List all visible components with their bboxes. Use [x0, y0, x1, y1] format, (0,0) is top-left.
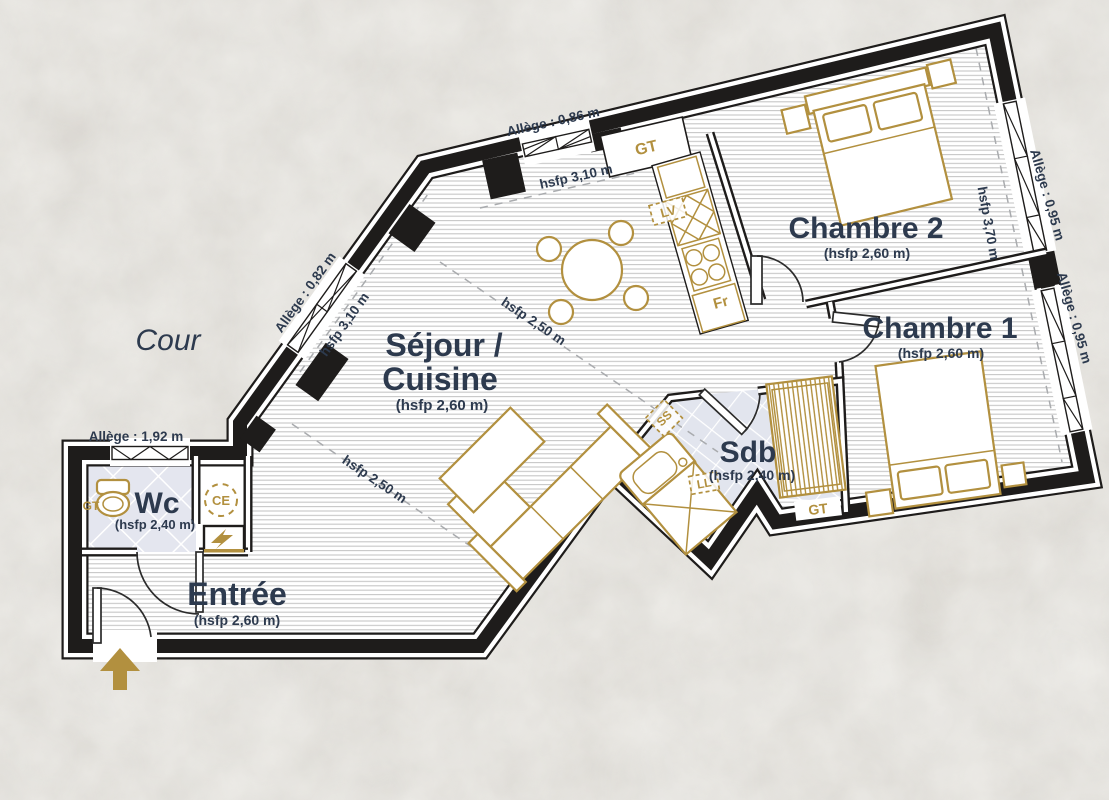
floor-plan: GT Fr LV [0, 0, 1109, 800]
label-sdb: Sdb [720, 436, 777, 469]
label-sdb-hsfp: (hsfp 2,40 m) [709, 467, 795, 483]
label-wc: Wc [135, 487, 180, 520]
electrical-panel [204, 526, 244, 553]
allege-wc: Allège : 1,92 m [89, 429, 184, 444]
label-sejour-line1: Séjour / [385, 327, 502, 363]
label-entree-hsfp: (hsfp 2,60 m) [194, 612, 280, 628]
gt-sdb-label: GT [807, 500, 829, 518]
label-cour: Cour [135, 324, 201, 357]
label-wc-hsfp: (hsfp 2,40 m) [115, 517, 195, 532]
floor-plan-page: GT Fr LV [0, 0, 1109, 800]
label-chambre2-hsfp: (hsfp 2,60 m) [824, 245, 910, 261]
label-chambre1-hsfp: (hsfp 2,60 m) [898, 345, 984, 361]
gt-wc-label: GT [83, 499, 100, 513]
label-sejour-hsfp: (hsfp 2,60 m) [396, 397, 489, 414]
label-chambre1: Chambre 1 [862, 312, 1017, 345]
water-heater-label: CE [212, 493, 230, 508]
label-chambre2: Chambre 2 [788, 212, 943, 245]
label-sejour-line2: Cuisine [382, 361, 498, 397]
toilet [97, 480, 129, 516]
label-entree: Entrée [187, 576, 287, 612]
